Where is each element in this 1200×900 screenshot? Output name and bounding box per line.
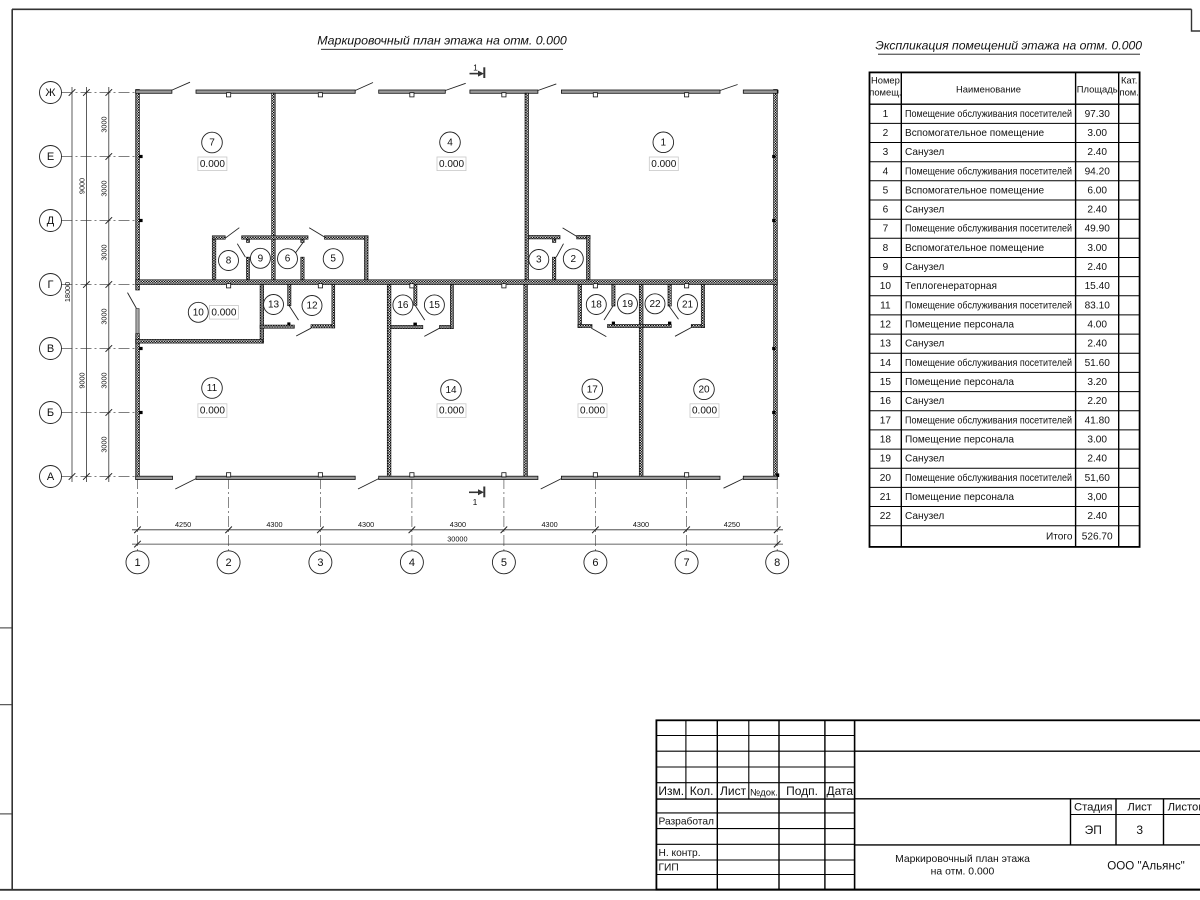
svg-text:21: 21 xyxy=(880,492,892,503)
svg-text:51.60: 51.60 xyxy=(1085,358,1111,369)
svg-text:3: 3 xyxy=(317,557,323,569)
svg-text:4.00: 4.00 xyxy=(1087,320,1107,331)
svg-text:13: 13 xyxy=(880,339,892,350)
svg-text:0.000: 0.000 xyxy=(580,406,605,417)
svg-text:0.000: 0.000 xyxy=(211,307,236,318)
svg-text:Помещение персонала: Помещение персонала xyxy=(905,377,1014,388)
svg-text:21: 21 xyxy=(682,300,694,311)
svg-text:Стадия: Стадия xyxy=(1074,802,1113,814)
svg-text:А: А xyxy=(47,471,55,483)
svg-text:49.90: 49.90 xyxy=(1085,224,1111,235)
svg-text:0.000: 0.000 xyxy=(200,159,225,170)
svg-text:3.20: 3.20 xyxy=(1087,377,1107,388)
svg-text:Б: Б xyxy=(47,407,54,419)
svg-text:Номер: Номер xyxy=(871,75,900,86)
svg-text:5: 5 xyxy=(501,557,507,569)
svg-text:2.40: 2.40 xyxy=(1087,511,1107,522)
svg-text:Кат.: Кат. xyxy=(1121,75,1137,86)
svg-text:Помещение обслуживания посетит: Помещение обслуживания посетителей xyxy=(905,223,1072,235)
svg-text:18: 18 xyxy=(591,300,603,311)
svg-text:Кол.: Кол. xyxy=(690,784,714,798)
svg-text:3000: 3000 xyxy=(100,436,109,452)
svg-text:3000: 3000 xyxy=(100,308,109,324)
svg-text:3000: 3000 xyxy=(100,116,109,132)
svg-text:19: 19 xyxy=(880,454,892,465)
svg-text:1: 1 xyxy=(661,137,667,148)
svg-text:Санузел: Санузел xyxy=(905,205,944,216)
svg-text:13: 13 xyxy=(268,300,280,311)
svg-text:6.00: 6.00 xyxy=(1087,185,1107,196)
svg-text:1: 1 xyxy=(473,497,478,507)
svg-text:3,00: 3,00 xyxy=(1087,492,1107,503)
svg-text:41.80: 41.80 xyxy=(1085,415,1111,426)
svg-text:Листов: Листов xyxy=(1168,802,1200,814)
svg-text:Г: Г xyxy=(48,279,54,291)
svg-text:12: 12 xyxy=(306,301,318,312)
svg-text:4300: 4300 xyxy=(266,520,282,529)
svg-text:Санузел: Санузел xyxy=(905,511,944,522)
svg-text:19: 19 xyxy=(622,299,634,310)
svg-text:2: 2 xyxy=(571,254,577,265)
svg-text:Помещение персонала: Помещение персонала xyxy=(905,492,1014,503)
svg-text:Санузел: Санузел xyxy=(905,454,944,465)
svg-text:2.40: 2.40 xyxy=(1087,205,1107,216)
svg-text:15.40: 15.40 xyxy=(1085,281,1111,292)
svg-text:1: 1 xyxy=(883,109,889,120)
svg-text:Вспомогательное помещение: Вспомогательное помещение xyxy=(905,185,1044,196)
svg-text:Помещение персонала: Помещение персонала xyxy=(905,320,1014,331)
svg-text:17: 17 xyxy=(587,384,599,395)
svg-text:11: 11 xyxy=(207,383,218,394)
svg-text:14: 14 xyxy=(880,358,892,369)
svg-text:8: 8 xyxy=(774,557,780,569)
svg-text:Е: Е xyxy=(47,151,54,163)
svg-text:ГИП: ГИП xyxy=(659,863,679,874)
svg-text:Дата: Дата xyxy=(827,784,854,798)
svg-text:9000: 9000 xyxy=(77,178,86,194)
svg-text:2: 2 xyxy=(226,557,232,569)
svg-text:1: 1 xyxy=(134,557,140,569)
svg-text:17: 17 xyxy=(880,415,892,426)
svg-text:Помещение обслуживания посетит: Помещение обслуживания посетителей xyxy=(905,357,1072,369)
svg-text:0.000: 0.000 xyxy=(439,159,464,170)
svg-text:2.40: 2.40 xyxy=(1087,454,1107,465)
svg-text:3: 3 xyxy=(883,147,889,158)
svg-text:4300: 4300 xyxy=(450,520,466,529)
svg-text:Лист: Лист xyxy=(1127,802,1152,814)
svg-text:Маркировочный план этажа: Маркировочный план этажа xyxy=(895,854,1030,865)
svg-text:пом.: пом. xyxy=(1120,87,1139,98)
svg-text:Санузел: Санузел xyxy=(905,396,944,407)
svg-text:4250: 4250 xyxy=(724,520,740,529)
svg-text:16: 16 xyxy=(397,300,409,311)
svg-text:83.10: 83.10 xyxy=(1085,300,1111,311)
svg-text:22: 22 xyxy=(649,299,661,310)
svg-text:3000: 3000 xyxy=(100,180,109,196)
svg-text:3000: 3000 xyxy=(100,372,109,388)
svg-text:20: 20 xyxy=(698,384,710,395)
svg-text:12: 12 xyxy=(880,320,892,331)
svg-text:Помещение обслуживания посетит: Помещение обслуживания посетителей xyxy=(905,108,1072,120)
svg-text:18: 18 xyxy=(880,435,892,446)
svg-text:0.000: 0.000 xyxy=(651,159,676,170)
svg-text:Вспомогательное помещение: Вспомогательное помещение xyxy=(905,243,1044,254)
svg-text:0.000: 0.000 xyxy=(692,406,717,417)
svg-text:Итого: Итого xyxy=(1046,531,1073,542)
svg-text:Ж: Ж xyxy=(45,87,55,99)
svg-text:2.40: 2.40 xyxy=(1087,147,1107,158)
svg-text:2.40: 2.40 xyxy=(1087,262,1107,273)
svg-text:ООО "Альянс": ООО "Альянс" xyxy=(1107,860,1185,873)
svg-text:6: 6 xyxy=(285,254,291,265)
svg-text:10: 10 xyxy=(193,307,205,318)
svg-text:94.20: 94.20 xyxy=(1085,166,1111,177)
svg-text:7: 7 xyxy=(684,557,690,569)
svg-text:15: 15 xyxy=(880,377,892,388)
svg-text:Помещение обслуживания посетит: Помещение обслуживания посетителей xyxy=(905,299,1072,311)
svg-text:3: 3 xyxy=(536,255,542,266)
svg-text:Лист: Лист xyxy=(720,784,747,798)
svg-text:Помещение персонала: Помещение персонала xyxy=(905,435,1014,446)
svg-text:Санузел: Санузел xyxy=(905,339,944,350)
svg-text:16: 16 xyxy=(880,396,892,407)
svg-text:14: 14 xyxy=(445,385,457,396)
svg-text:Помещение обслуживания посетит: Помещение обслуживания посетителей xyxy=(905,472,1072,484)
svg-text:8: 8 xyxy=(883,243,889,254)
svg-text:6: 6 xyxy=(592,557,598,569)
svg-text:4: 4 xyxy=(447,137,453,148)
svg-text:4300: 4300 xyxy=(633,520,649,529)
svg-text:15: 15 xyxy=(429,300,441,311)
svg-text:Н. контр.: Н. контр. xyxy=(659,848,701,859)
svg-text:18000: 18000 xyxy=(63,282,72,302)
svg-text:526.70: 526.70 xyxy=(1082,531,1113,542)
svg-text:ЭП: ЭП xyxy=(1085,823,1102,837)
svg-text:97.30: 97.30 xyxy=(1085,109,1111,120)
svg-text:3000: 3000 xyxy=(100,244,109,260)
svg-text:7: 7 xyxy=(883,224,889,235)
svg-text:3: 3 xyxy=(1136,823,1143,837)
svg-text:2.40: 2.40 xyxy=(1087,339,1107,350)
svg-text:Наименование: Наименование xyxy=(956,84,1021,95)
svg-text:3.00: 3.00 xyxy=(1087,435,1107,446)
svg-text:помещ.: помещ. xyxy=(869,87,901,98)
svg-text:22: 22 xyxy=(880,511,892,522)
svg-text:Маркировочный план этажа на от: Маркировочный план этажа на отм. 0.000 xyxy=(317,34,567,48)
svg-text:0.000: 0.000 xyxy=(200,406,225,417)
svg-text:Д: Д xyxy=(47,215,55,227)
svg-text:5: 5 xyxy=(330,254,336,265)
svg-text:Изм.: Изм. xyxy=(658,784,684,798)
svg-text:4: 4 xyxy=(883,166,889,177)
svg-text:4300: 4300 xyxy=(358,520,374,529)
svg-text:0.000: 0.000 xyxy=(439,406,464,417)
svg-text:Помещение обслуживания посетит: Помещение обслуживания посетителей xyxy=(905,165,1072,177)
svg-text:51,60: 51,60 xyxy=(1085,473,1111,484)
svg-text:№док.: №док. xyxy=(750,788,778,799)
svg-text:10: 10 xyxy=(880,281,892,292)
svg-text:Санузел: Санузел xyxy=(905,147,944,158)
svg-text:7: 7 xyxy=(209,138,215,149)
svg-text:Санузел: Санузел xyxy=(905,262,944,273)
svg-text:на отм. 0.000: на отм. 0.000 xyxy=(931,866,995,877)
svg-text:Площадь: Площадь xyxy=(1077,84,1118,95)
svg-text:11: 11 xyxy=(880,300,891,311)
svg-text:4300: 4300 xyxy=(541,520,557,529)
svg-text:2: 2 xyxy=(883,128,889,139)
svg-text:Экспликация помещений этажа на: Экспликация помещений этажа на отм. 0.00… xyxy=(875,39,1142,53)
svg-text:3.00: 3.00 xyxy=(1087,128,1107,139)
svg-text:6: 6 xyxy=(883,205,889,216)
svg-text:9000: 9000 xyxy=(77,372,86,388)
svg-text:Разработал: Разработал xyxy=(659,815,715,827)
svg-text:В: В xyxy=(47,343,54,355)
svg-text:Подп.: Подп. xyxy=(786,784,818,798)
svg-text:9: 9 xyxy=(883,262,889,273)
svg-text:Вспомогательное помещение: Вспомогательное помещение xyxy=(905,128,1044,139)
svg-text:2.20: 2.20 xyxy=(1087,396,1107,407)
svg-text:4: 4 xyxy=(409,557,415,569)
svg-text:Помещение обслуживания посетит: Помещение обслуживания посетителей xyxy=(905,414,1072,426)
svg-text:3.00: 3.00 xyxy=(1087,243,1107,254)
svg-text:8: 8 xyxy=(226,256,232,267)
svg-text:1: 1 xyxy=(473,62,478,72)
svg-text:5: 5 xyxy=(883,185,889,196)
svg-text:9: 9 xyxy=(258,253,264,264)
svg-text:30000: 30000 xyxy=(447,534,467,543)
svg-text:4250: 4250 xyxy=(175,520,191,529)
svg-text:20: 20 xyxy=(880,473,892,484)
svg-text:Теплогенераторная: Теплогенераторная xyxy=(905,281,997,292)
